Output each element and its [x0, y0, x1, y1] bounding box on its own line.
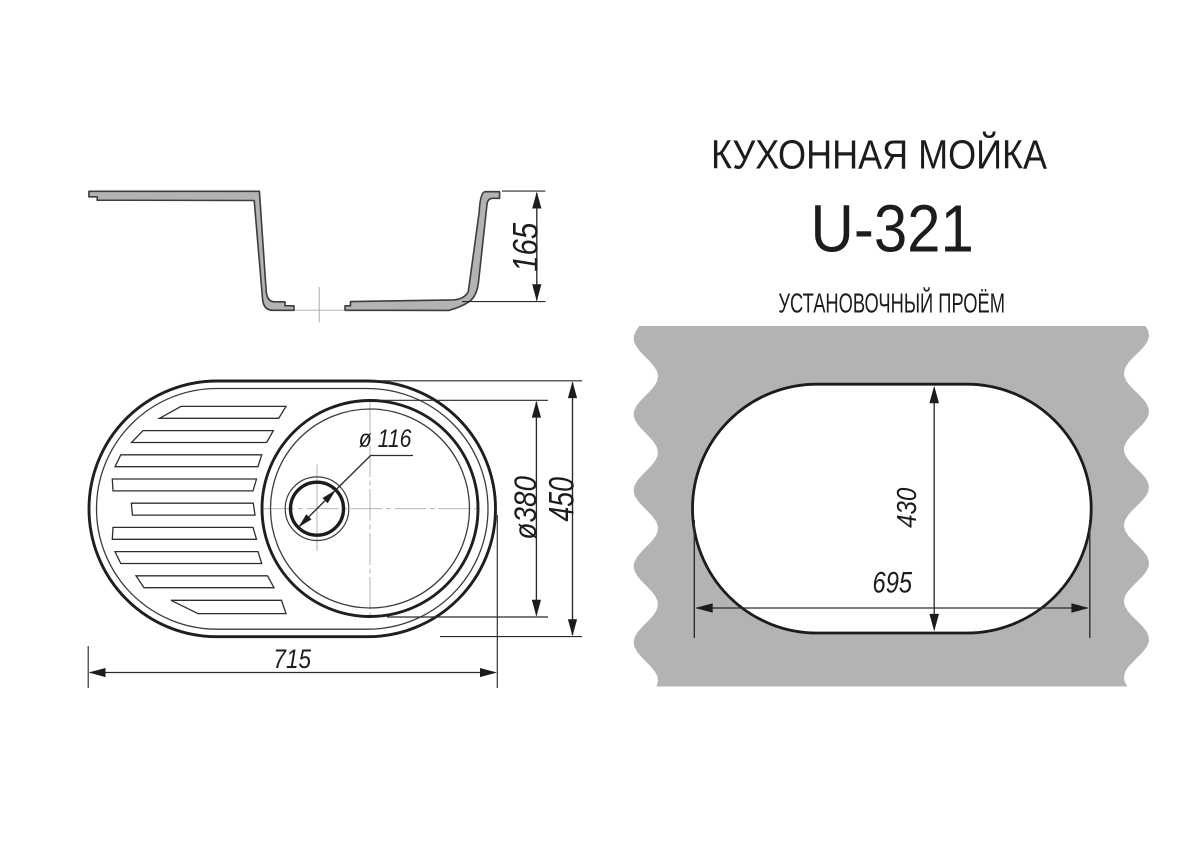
svg-text:450: 450 — [542, 477, 581, 522]
svg-text:КУХОННАЯ МОЙКА: КУХОННАЯ МОЙКА — [711, 131, 1047, 178]
svg-text:ø380: ø380 — [508, 476, 543, 540]
svg-text:165: 165 — [506, 222, 545, 272]
svg-text:695: 695 — [873, 566, 913, 599]
svg-text:715: 715 — [273, 645, 311, 674]
svg-text:430: 430 — [893, 487, 923, 528]
svg-text:U-321: U-321 — [811, 191, 974, 266]
svg-text:УСТАНОВОЧНЫЙ ПРОЁМ: УСТАНОВОЧНЫЙ ПРОЁМ — [778, 287, 1005, 319]
svg-text:ø 116: ø 116 — [359, 424, 412, 452]
